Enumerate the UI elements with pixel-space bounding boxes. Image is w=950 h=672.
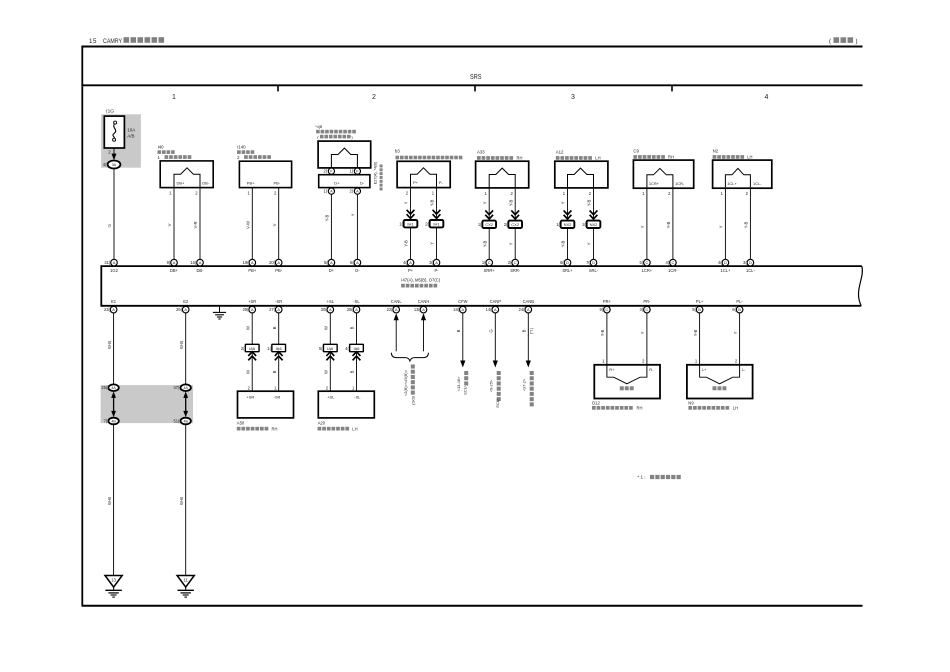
svg-text:2: 2: [237, 155, 240, 160]
svg-text:19(: 19(: [243, 260, 250, 265]
svg-text:3(: 3(: [743, 260, 747, 265]
svg-text:<13-48>: <13-48>: [456, 376, 461, 391]
svg-text:CANL: CANL: [391, 299, 403, 304]
svg-text:A: A: [409, 260, 412, 265]
svg-text:PL+: PL+: [696, 299, 704, 304]
svg-text:Y-B: Y-B: [404, 240, 409, 247]
svg-text:A12: A12: [556, 150, 564, 155]
svg-text:2(: 2(: [241, 346, 245, 351]
svg-text:1(: 1(: [324, 189, 328, 194]
svg-text:2: 2: [746, 191, 749, 196]
svg-text:Y: Y: [640, 331, 645, 334]
svg-text:Y-B: Y-B: [666, 222, 671, 229]
svg-text:3(: 3(: [429, 260, 433, 265]
svg-text:2: 2: [195, 191, 198, 196]
svg-text:DB+: DB+: [177, 181, 186, 186]
svg-text:SRL+: SRL+: [562, 268, 573, 273]
svg-text:B: B: [738, 307, 741, 312]
svg-text:ECU: ECU: [463, 386, 468, 394]
svg-text:SRL-: SRL-: [589, 268, 599, 273]
svg-text:13(: 13(: [414, 307, 421, 312]
svg-text:-SR: -SR: [275, 299, 282, 304]
svg-text:A: A: [494, 307, 497, 312]
svg-text:D-: D-: [355, 268, 360, 273]
svg-text:4: 4: [765, 94, 769, 101]
svg-text:2: 2: [406, 191, 409, 196]
svg-text:1: 1: [695, 358, 698, 363]
svg-text:Y: Y: [404, 201, 409, 204]
svg-text:D: D: [592, 260, 595, 265]
svg-text:7(: 7(: [586, 260, 590, 265]
svg-text:B: B: [350, 326, 355, 329]
svg-text:E1: E1: [111, 299, 117, 304]
svg-text:Y: Y: [719, 225, 724, 228]
svg-text:Y: Y: [733, 331, 738, 334]
svg-text:V: V: [167, 223, 172, 226]
svg-text:<37-2>: <37-2>: [522, 378, 527, 391]
svg-text:NX2: NX2: [564, 222, 573, 227]
svg-text:5(: 5(: [319, 346, 323, 351]
svg-text:I40: I40: [158, 145, 165, 150]
svg-text:<2(B)><45(B)>: <2(B)><45(B)>: [403, 369, 408, 396]
svg-text:D: D: [724, 260, 727, 265]
svg-text:3(: 3(: [640, 307, 644, 312]
svg-text:RH: RH: [668, 155, 674, 160]
svg-text:B: B: [272, 370, 277, 373]
svg-text:A50: A50: [237, 420, 245, 425]
svg-text:23(: 23(: [104, 307, 111, 312]
svg-text:(1G: (1G: [106, 109, 114, 115]
svg-text:C: C: [645, 260, 648, 265]
svg-text:1CL+: 1CL+: [720, 268, 731, 273]
svg-text:N2: N2: [713, 149, 719, 154]
svg-text:1(: 1(: [267, 346, 271, 351]
svg-text:CFW: CFW: [458, 299, 467, 304]
svg-text:CAMRY: CAMRY: [103, 38, 122, 45]
svg-text:A33: A33: [477, 150, 485, 155]
svg-text:A: A: [173, 260, 176, 265]
svg-text:5(: 5(: [640, 260, 644, 265]
svg-text:LH: LH: [595, 156, 600, 161]
svg-text:P+: P+: [408, 268, 414, 273]
svg-text:2: 2: [735, 358, 738, 363]
svg-text:1: 1: [169, 191, 172, 196]
svg-text:PB-: PB-: [274, 181, 281, 186]
svg-text:2(: 2(: [350, 189, 354, 194]
svg-text:1CR+: 1CR+: [649, 181, 660, 186]
svg-text:1(: 1(: [482, 260, 486, 265]
svg-text:D: D: [749, 260, 752, 265]
svg-text:A: A: [355, 307, 358, 312]
svg-text:R+: R+: [609, 367, 615, 372]
svg-text:Y: Y: [587, 242, 592, 245]
svg-text:4(: 4(: [666, 260, 670, 265]
svg-text:B: B: [272, 326, 277, 329]
svg-text:B: B: [698, 307, 701, 312]
svg-text:W-B: W-B: [107, 497, 112, 505]
svg-text:R-: R-: [649, 367, 654, 372]
svg-text:DB-: DB-: [196, 268, 204, 273]
svg-text:(*1): (*1): [529, 327, 533, 334]
svg-text:CX2: CX2: [485, 222, 494, 227]
svg-text:E27(A), *4(B): E27(A), *4(B): [373, 161, 377, 184]
svg-text:<9-25>: <9-25>: [489, 379, 494, 392]
svg-text:10A: 10A: [127, 128, 135, 133]
svg-text:A: A: [251, 260, 254, 265]
svg-text:2: 2: [510, 191, 513, 196]
svg-text:2: 2: [248, 385, 251, 390]
svg-text:CANH: CANH: [418, 299, 430, 304]
svg-text:26(: 26(: [176, 307, 183, 312]
svg-text:2: 2: [326, 385, 329, 390]
svg-text:b3: b3: [395, 148, 400, 153]
svg-text:SRS: SRS: [470, 72, 482, 81]
svg-text:4A: 4A: [111, 386, 116, 390]
svg-text:22(: 22(: [387, 307, 394, 312]
svg-text:Y: Y: [561, 201, 566, 204]
svg-text:2(: 2(: [425, 222, 429, 227]
svg-text:1: 1: [172, 94, 176, 101]
svg-text:A: A: [527, 307, 530, 312]
svg-text:A: A: [356, 260, 359, 265]
svg-text:IA6: IA6: [353, 346, 360, 351]
svg-text:1(: 1(: [478, 222, 482, 227]
svg-text:A: A: [277, 307, 280, 312]
svg-text:A: A: [461, 307, 464, 312]
svg-text:4B: 4B: [111, 419, 116, 423]
svg-text:4A: 4A: [183, 386, 188, 390]
svg-text:A20: A20: [318, 420, 326, 425]
svg-text:DB-: DB-: [202, 181, 210, 186]
svg-text:+SR: +SR: [248, 299, 256, 304]
svg-text:47(: 47(: [173, 385, 180, 390]
svg-text:18(: 18(: [453, 307, 460, 312]
svg-text:Y-B: Y-B: [693, 330, 698, 337]
svg-text:31(: 31(: [104, 260, 111, 265]
svg-text:2(: 2(: [324, 169, 328, 174]
svg-text:4(: 4(: [103, 162, 107, 167]
svg-text:PB+: PB+: [247, 181, 255, 186]
svg-text:I47(A), M5(B), O7(C): I47(A), M5(B), O7(C): [401, 277, 440, 282]
svg-text:1(: 1(: [399, 222, 403, 227]
svg-text:V-W: V-W: [246, 221, 251, 229]
svg-text:IH1: IH1: [407, 222, 414, 227]
svg-text:3: 3: [571, 94, 575, 101]
svg-text:V-R: V-R: [193, 222, 198, 229]
svg-text:A: A: [395, 307, 398, 312]
svg-text:B: B: [522, 329, 527, 332]
svg-text:PB-: PB-: [275, 268, 282, 273]
svg-text:P-: P-: [434, 268, 439, 273]
svg-text:1CL-: 1CL-: [746, 268, 756, 273]
svg-text:I140: I140: [237, 145, 246, 150]
svg-text:2(: 2(: [508, 260, 512, 265]
svg-text:25(: 25(: [101, 385, 108, 390]
svg-text:1G2: 1G2: [110, 268, 118, 273]
svg-text:DB+: DB+: [170, 268, 179, 273]
svg-text:A: A: [113, 260, 116, 265]
svg-text:1: 1: [158, 155, 161, 160]
svg-text:A: A: [330, 260, 333, 265]
svg-text:5(: 5(: [324, 260, 328, 265]
svg-text:B: B: [350, 370, 355, 373]
svg-text:C: C: [645, 307, 648, 312]
svg-text:Y: Y: [430, 242, 435, 245]
svg-text:Y-B: Y-B: [482, 241, 487, 248]
svg-text:2(: 2(: [582, 222, 586, 227]
svg-text:16(: 16(: [190, 260, 197, 265]
svg-text:13: 13: [111, 578, 116, 583]
svg-text:A: A: [251, 307, 254, 312]
svg-text:W-B: W-B: [107, 341, 112, 349]
svg-text:A: A: [422, 307, 425, 312]
svg-text:Y-B: Y-B: [561, 241, 566, 248]
svg-text:1: 1: [432, 191, 435, 196]
svg-text:A: A: [356, 190, 359, 194]
svg-text:1: 1: [563, 191, 566, 196]
svg-text:24(: 24(: [519, 307, 526, 312]
svg-text:RH: RH: [517, 156, 523, 161]
svg-text:D+: D+: [329, 268, 335, 273]
svg-text:SRR+: SRR+: [484, 268, 496, 273]
svg-text:IA6: IA6: [249, 346, 256, 351]
svg-text:Y: Y: [351, 213, 356, 216]
svg-text:PL-: PL-: [736, 299, 743, 304]
svg-text:1: 1: [642, 191, 645, 196]
svg-text:CANB: CANB: [523, 299, 535, 304]
svg-text:2(: 2(: [504, 222, 508, 227]
svg-text:N9: N9: [688, 401, 694, 406]
svg-text:1: 1: [274, 385, 277, 390]
svg-text:SRR-: SRR-: [510, 268, 521, 273]
svg-text:PR-: PR-: [643, 299, 651, 304]
svg-text:+SL: +SL: [327, 394, 335, 399]
svg-text:A: A: [199, 260, 202, 265]
svg-text:51(: 51(: [173, 419, 180, 424]
svg-text:* 1 :: * 1 :: [637, 475, 645, 480]
svg-text:LH: LH: [747, 155, 752, 160]
svg-text:D: D: [566, 260, 569, 265]
svg-text:W-B: W-B: [179, 497, 184, 505]
svg-text:15: 15: [89, 38, 97, 45]
svg-text:C9: C9: [633, 149, 639, 154]
svg-text:2: 2: [589, 191, 592, 196]
svg-text:D+: D+: [334, 180, 340, 185]
svg-text:4(: 4(: [403, 260, 407, 265]
svg-text:2: 2: [372, 94, 376, 101]
svg-text:IH1: IH1: [433, 222, 440, 227]
svg-text:CANP: CANP: [490, 299, 502, 304]
svg-text:Y-B: Y-B: [744, 222, 749, 229]
svg-text:30(: 30(: [321, 307, 328, 312]
svg-text:P: P: [108, 224, 111, 229]
svg-text:-SL: -SL: [354, 394, 361, 399]
svg-text:): ): [856, 39, 858, 45]
svg-text:6(: 6(: [732, 307, 736, 312]
svg-text:W-B: W-B: [179, 341, 184, 349]
svg-text:E2: E2: [183, 299, 189, 304]
svg-text:+SL: +SL: [327, 299, 335, 304]
svg-text:4(: 4(: [345, 346, 349, 351]
svg-text:1CR-: 1CR-: [668, 268, 678, 273]
svg-text:P+: P+: [413, 180, 419, 185]
svg-text:4B: 4B: [183, 419, 188, 423]
svg-text:B: B: [456, 329, 461, 332]
svg-text:-SR: -SR: [274, 394, 281, 399]
svg-text:PB+: PB+: [248, 268, 256, 273]
svg-text:+SR: +SR: [246, 394, 254, 399]
svg-text:1: 1: [484, 191, 487, 196]
svg-text:Y: Y: [640, 225, 645, 228]
svg-text:1(: 1(: [556, 222, 560, 227]
svg-text:RH: RH: [272, 426, 278, 431]
svg-text:1: 1: [721, 191, 724, 196]
svg-text:14(: 14(: [486, 307, 493, 312]
svg-text:1CL+: 1CL+: [727, 181, 737, 186]
svg-text:LH: LH: [733, 406, 738, 411]
svg-text:4(: 4(: [718, 260, 722, 265]
svg-text:ECU: ECU: [495, 399, 500, 407]
svg-text:6(: 6(: [350, 260, 354, 265]
svg-text:O12: O12: [592, 401, 601, 406]
svg-text:11: 11: [184, 578, 189, 583]
svg-text:Y-B: Y-B: [600, 330, 605, 337]
svg-text:IA6: IA6: [276, 346, 283, 351]
svg-text:L+: L+: [702, 367, 707, 372]
svg-text:1: 1: [248, 191, 251, 196]
svg-text:Y-B: Y-B: [587, 200, 592, 207]
svg-text:5(: 5(: [692, 307, 696, 312]
svg-text:1: 1: [602, 358, 605, 363]
svg-text:2: 2: [274, 191, 277, 196]
svg-text:20(: 20(: [269, 260, 276, 265]
svg-text:LH: LH: [352, 426, 357, 431]
svg-text:A: A: [184, 307, 187, 312]
svg-text:C: C: [671, 260, 674, 265]
svg-text:7(: 7(: [104, 419, 108, 424]
svg-text:2: 2: [668, 191, 671, 196]
svg-text:9(: 9(: [167, 260, 171, 265]
svg-text:NX2: NX2: [590, 222, 599, 227]
svg-text:C: C: [605, 307, 608, 312]
svg-text:-SL: -SL: [353, 299, 360, 304]
svg-text:(: (: [829, 39, 831, 45]
svg-text:1CR-: 1CR-: [675, 181, 685, 186]
svg-text:29(: 29(: [243, 307, 250, 312]
svg-text:1CR+: 1CR+: [642, 268, 653, 273]
svg-text:RH: RH: [637, 406, 643, 411]
svg-text:Y: Y: [508, 242, 513, 245]
svg-text:9(: 9(: [600, 307, 604, 312]
svg-text:P-: P-: [439, 180, 444, 185]
svg-text:6(: 6(: [560, 260, 564, 265]
svg-text:W: W: [245, 370, 250, 374]
svg-text:1: 1: [352, 385, 355, 390]
svg-text:A/B: A/B: [127, 133, 134, 138]
svg-text:W: W: [324, 370, 329, 374]
svg-text:C: C: [488, 260, 491, 265]
svg-text:(G09: (G09: [411, 396, 416, 405]
svg-text:*4(B: *4(B: [315, 125, 323, 129]
svg-text:W: W: [324, 326, 329, 330]
svg-text:(: (: [317, 134, 319, 139]
svg-text:1(: 1(: [350, 169, 354, 174]
svg-text:1CL-: 1CL-: [753, 181, 762, 186]
svg-text:IA6: IA6: [327, 346, 334, 351]
svg-text:V: V: [272, 223, 277, 226]
svg-text:Y-B: Y-B: [430, 200, 435, 207]
svg-text:A: A: [435, 260, 438, 265]
svg-text:W: W: [245, 326, 250, 330]
svg-text:PR+: PR+: [603, 299, 612, 304]
svg-text:): ): [351, 134, 353, 139]
svg-text:Y-B: Y-B: [325, 215, 330, 222]
svg-text:A: A: [277, 260, 280, 265]
svg-text:Y-B: Y-B: [508, 200, 513, 207]
svg-text:A: A: [330, 190, 333, 194]
svg-text:27(: 27(: [269, 307, 276, 312]
svg-text:A: A: [112, 307, 115, 312]
svg-text:2: 2: [642, 358, 645, 363]
svg-text:28(: 28(: [347, 307, 354, 312]
svg-text:Y: Y: [482, 201, 487, 204]
svg-text:A: A: [329, 307, 332, 312]
svg-text:3A: 3A: [112, 163, 117, 167]
svg-text:D-: D-: [360, 180, 365, 185]
svg-text:C: C: [514, 260, 517, 265]
svg-text:CX2: CX2: [511, 222, 520, 227]
svg-text:G: G: [489, 329, 494, 332]
